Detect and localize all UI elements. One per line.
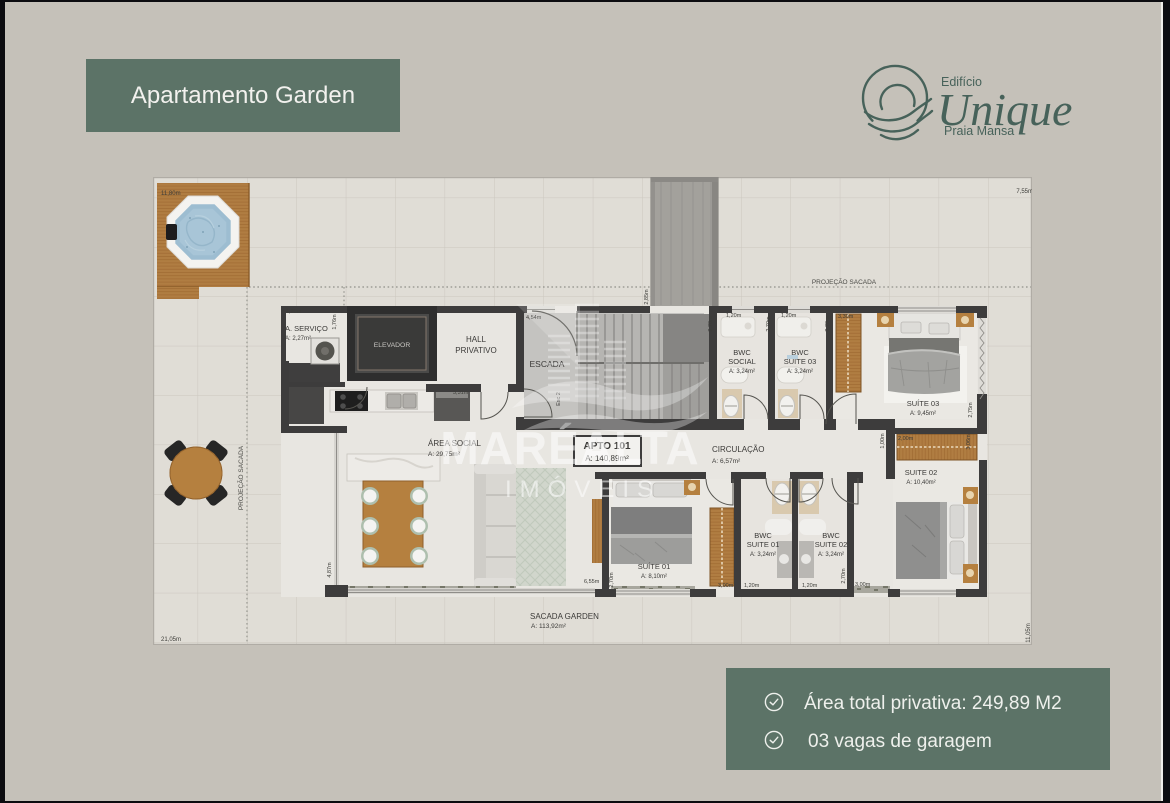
- svg-text:BWC: BWC: [822, 531, 840, 540]
- svg-text:A: 2,27m²: A: 2,27m²: [285, 336, 311, 342]
- svg-text:CIRCULAÇÃO: CIRCULAÇÃO: [712, 445, 764, 454]
- svg-text:A: 3,24m²: A: 3,24m²: [750, 552, 776, 558]
- svg-text:SUÍTE 01: SUÍTE 01: [638, 562, 671, 571]
- svg-text:2,70m: 2,70m: [609, 572, 615, 588]
- svg-text:SUITE 01: SUITE 01: [747, 540, 780, 549]
- svg-text:A: 3,24m²: A: 3,24m²: [729, 369, 755, 375]
- svg-text:11,05m: 11,05m: [1026, 623, 1032, 643]
- svg-text:BWC: BWC: [791, 348, 809, 357]
- svg-text:A: 6,57m²: A: 6,57m²: [712, 458, 741, 465]
- svg-text:A: 3,24m²: A: 3,24m²: [818, 552, 844, 558]
- svg-text:2,70m: 2,70m: [708, 316, 714, 332]
- svg-text:A. SERVIÇO: A. SERVIÇO: [285, 324, 328, 333]
- svg-text:1,00m: 1,00m: [880, 433, 886, 449]
- svg-text:A: 10,40m²: A: 10,40m²: [906, 480, 935, 486]
- svg-text:BWC: BWC: [733, 348, 751, 357]
- svg-text:1,76m: 1,76m: [332, 314, 338, 330]
- svg-text:A: 8,10m²: A: 8,10m²: [641, 574, 667, 580]
- svg-text:ELEVADOR: ELEVADOR: [374, 342, 411, 349]
- svg-text:2,70m: 2,70m: [841, 568, 847, 584]
- svg-text:2,70m: 2,70m: [825, 316, 831, 332]
- svg-text:1,20m: 1,20m: [802, 583, 818, 589]
- svg-text:3,30m: 3,30m: [838, 314, 854, 320]
- svg-text:1,20m: 1,20m: [744, 583, 760, 589]
- svg-text:21,05m: 21,05m: [161, 637, 181, 643]
- svg-text:2,70m: 2,70m: [766, 316, 772, 332]
- svg-text:1,20m: 1,20m: [726, 313, 742, 319]
- svg-text:SUITE 02: SUITE 02: [905, 468, 938, 477]
- svg-text:SUITE 03: SUITE 03: [784, 357, 817, 366]
- svg-text:SOCIAL: SOCIAL: [728, 357, 756, 366]
- svg-text:3,00m: 3,00m: [718, 583, 734, 589]
- svg-text:IMÓVEIS: IMÓVEIS: [505, 476, 661, 503]
- svg-text:HALL: HALL: [466, 335, 487, 344]
- svg-text:PRIVATIVO: PRIVATIVO: [455, 346, 497, 355]
- svg-text:4,87m: 4,87m: [327, 562, 333, 578]
- svg-text:11,80m: 11,80m: [161, 191, 181, 197]
- svg-text:6,55m: 6,55m: [584, 579, 600, 585]
- svg-text:1,20m: 1,20m: [286, 309, 302, 315]
- svg-text:SACADA GARDEN: SACADA GARDEN: [530, 612, 599, 621]
- svg-text:Praia Mansa: Praia Mansa: [944, 124, 1014, 138]
- svg-text:SUITE 02: SUITE 02: [815, 540, 848, 549]
- svg-text:BWC: BWC: [754, 531, 772, 540]
- svg-text:PROJEÇÃO SACADA: PROJEÇÃO SACADA: [236, 445, 245, 510]
- svg-text:2,00m: 2,00m: [898, 436, 914, 442]
- svg-text:7,55m: 7,55m: [1016, 189, 1032, 195]
- svg-text:A: 113,92m²: A: 113,92m²: [531, 623, 567, 630]
- svg-text:MARÉALTA: MARÉALTA: [440, 422, 699, 474]
- svg-text:PROJEÇÃO SACADA: PROJEÇÃO SACADA: [812, 277, 877, 286]
- svg-text:2,85m: 2,85m: [644, 289, 650, 305]
- svg-text:SUÍTE 03: SUÍTE 03: [907, 399, 940, 408]
- svg-text:2,75m: 2,75m: [968, 402, 974, 418]
- svg-text:3,31m: 3,31m: [453, 390, 469, 396]
- svg-text:3,00m: 3,00m: [855, 582, 871, 588]
- svg-text:3,06m: 3,06m: [966, 434, 972, 450]
- svg-text:A: 9,45m²: A: 9,45m²: [910, 411, 936, 417]
- svg-text:1,20m: 1,20m: [781, 313, 797, 319]
- svg-text:A: 3,24m²: A: 3,24m²: [787, 369, 813, 375]
